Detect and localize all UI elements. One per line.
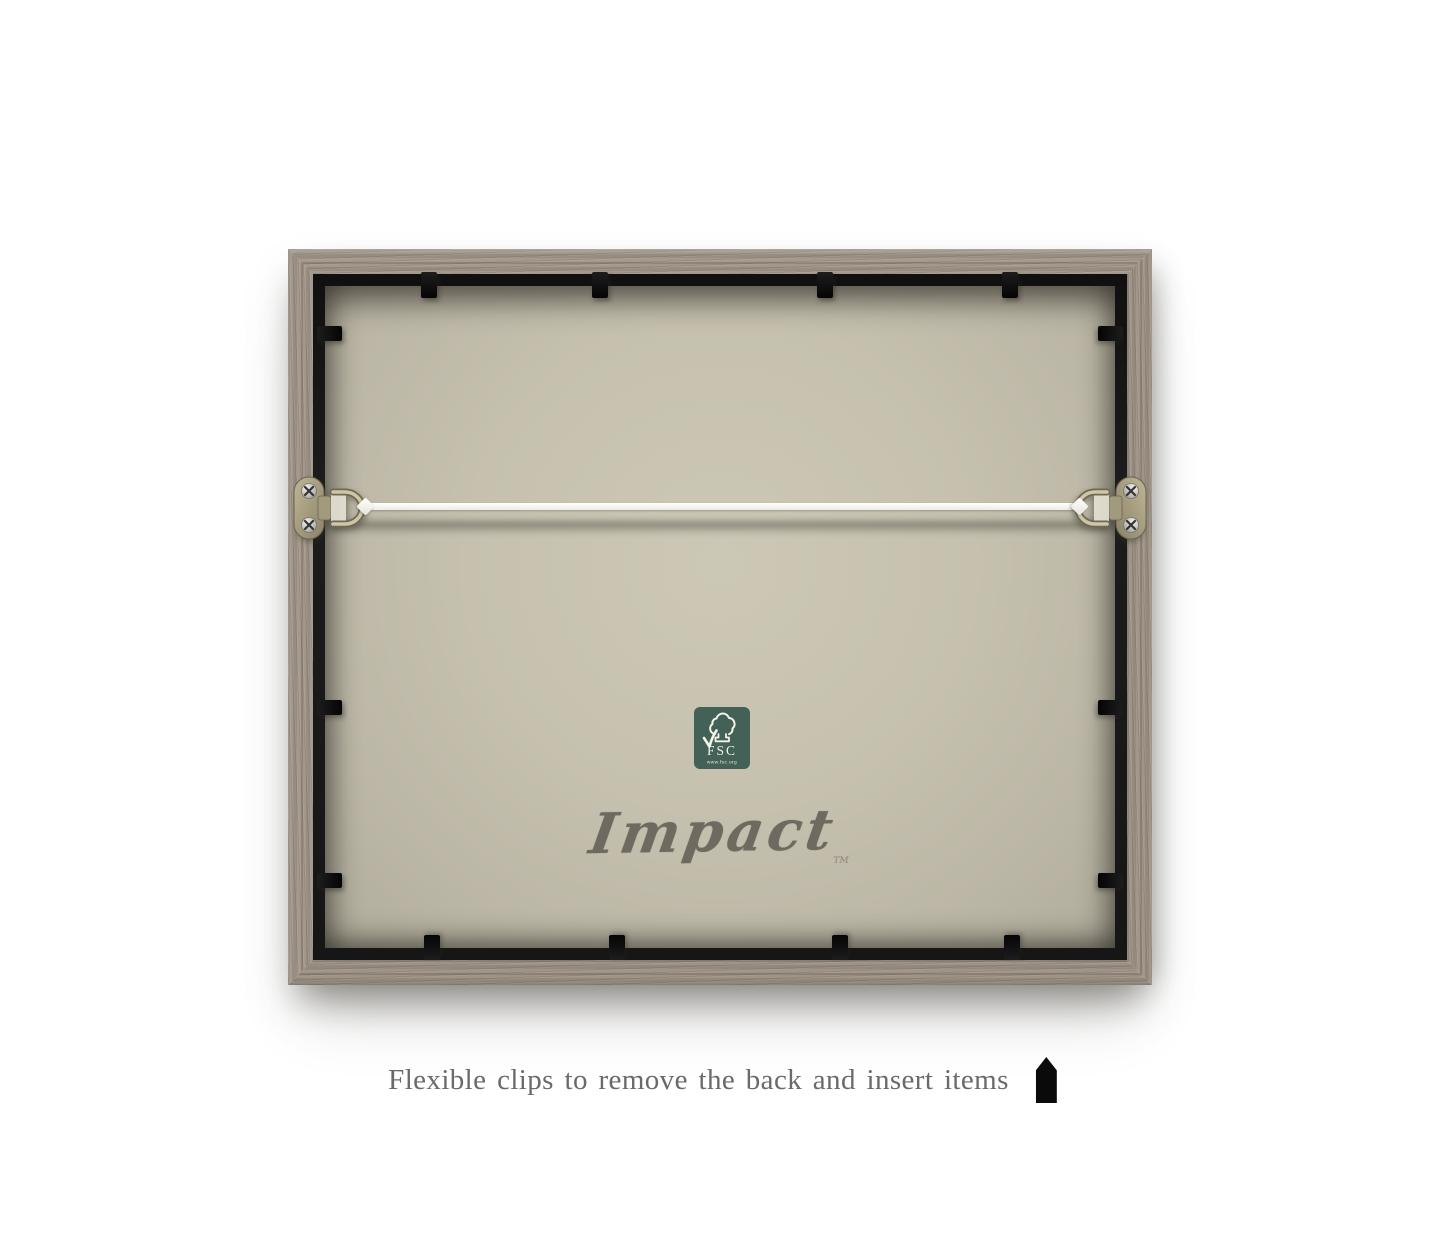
screw-icon [302, 484, 317, 499]
clip-icon [1036, 1057, 1057, 1103]
brand-logo: ImpactTM [565, 786, 880, 877]
wood-rail-left [288, 249, 313, 985]
flexible-clip [832, 935, 848, 960]
screw-icon [302, 518, 317, 533]
wood-rail-right [1127, 249, 1152, 985]
caption: Flexible clips to remove the back and in… [0, 1050, 1445, 1110]
flexible-clip [817, 272, 833, 298]
flexible-clip [1098, 700, 1123, 715]
fsc-label: FSC www.fsc.org [694, 707, 750, 769]
flexible-clip [1098, 873, 1123, 888]
wood-rail-top [288, 249, 1152, 274]
flexible-clip [317, 326, 342, 341]
caption-text: Flexible clips to remove the back and in… [388, 1064, 1009, 1097]
fsc-abbr-text: FSC [707, 743, 737, 758]
flexible-clip [1002, 272, 1018, 298]
hanging-wire [362, 503, 1080, 510]
flexible-clip [421, 272, 437, 298]
flexible-clip [424, 935, 440, 960]
screw-icon [1124, 518, 1139, 533]
flexible-clip [317, 700, 342, 715]
flexible-clip [317, 873, 342, 888]
screw-icon [1124, 484, 1139, 499]
trademark-text: TM [832, 856, 849, 866]
fsc-url-text: www.fsc.org [707, 760, 737, 766]
flexible-clip [609, 935, 625, 960]
wire-shadow [326, 517, 1114, 537]
product-photo: FSC www.fsc.org ImpactTM Flexible clips … [0, 0, 1445, 1236]
hanger-slot [1094, 492, 1109, 524]
brand-text: Impact [585, 797, 841, 867]
flexible-clip [592, 272, 608, 298]
wood-rail-bottom [288, 960, 1152, 985]
flexible-clip [1004, 935, 1020, 960]
hanger-slot [331, 492, 346, 524]
frame-back: FSC www.fsc.org ImpactTM [288, 249, 1152, 985]
flexible-clip [1098, 326, 1123, 341]
